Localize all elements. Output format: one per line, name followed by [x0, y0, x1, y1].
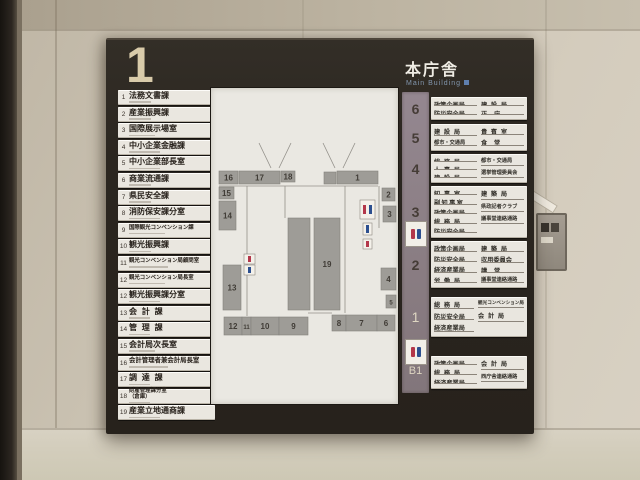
directory-row-label: 産業振興課 — [129, 109, 169, 120]
floor-panel-6: 政策企画局防災安全局建設局正庁 — [431, 97, 527, 120]
floor-strip-number-1: 1 — [402, 309, 429, 325]
directory-row: 9国際観光コンベンション課 — [118, 223, 215, 238]
male-pictogram-icon — [417, 229, 421, 239]
directory-row-label: 県民安全課 — [129, 192, 169, 203]
female-pictogram-icon — [411, 229, 415, 239]
directory-row: 4中小企業金融課 — [118, 140, 215, 155]
department-entry: 会計局 — [481, 359, 524, 370]
directory-row: 6商業流通課 — [118, 173, 215, 188]
directory-row-romaji-line — [129, 384, 150, 386]
department-entry: 貴賓室 — [481, 127, 524, 135]
directory-row: 5中小企業部長室 — [118, 156, 215, 171]
map-room-2: 2 — [382, 188, 395, 201]
directory-row-label: 管理課 — [129, 324, 167, 335]
directory-row-number: 4 — [118, 144, 129, 151]
department-entry: 議事堂連絡通路 — [481, 215, 524, 224]
directory-row: 12観光コンベンション局長室 — [118, 273, 215, 288]
department-entry: 政策企画局 — [434, 244, 477, 252]
restroom-icon — [405, 221, 427, 247]
wall-upper-tile-band — [0, 0, 640, 29]
directory-row-romaji-line — [129, 218, 160, 220]
directory-row: 16会計管理者兼会計局長室 — [118, 356, 215, 371]
department-entry: 建築局 — [481, 244, 524, 252]
accessibility-icon — [464, 80, 469, 85]
department-entry: 防災安全局 — [434, 227, 477, 233]
map-room-6: 6 — [377, 315, 395, 331]
floor-panel-5: 建設局都市・交通局貴賓室食堂 — [431, 124, 527, 151]
map-room — [288, 218, 310, 310]
restroom-icon — [405, 339, 427, 365]
floor-panel-5-left-column: 建設局都市・交通局 — [433, 126, 478, 149]
directory-row-number: 14 — [118, 326, 129, 333]
left-door-frame-shadow — [0, 0, 17, 480]
map-room-number: 13 — [228, 284, 237, 293]
department-entry: 都市・交通局 — [434, 139, 477, 146]
department-entry: 政策企画局 — [434, 208, 477, 214]
directory-row-number: 18 — [118, 393, 129, 400]
current-floor-numeral: 1 — [126, 36, 154, 94]
map-room-1: 1 — [337, 171, 378, 184]
floor-panel-1-right-column: 観光コンベンション局会計局 — [477, 299, 525, 335]
directory-row-number: 9 — [118, 227, 129, 234]
female-pictogram-icon — [411, 347, 415, 357]
switch-icon[interactable] — [541, 223, 549, 232]
directory-row-number: 3 — [118, 127, 129, 134]
directory-row-number: 19 — [118, 409, 129, 416]
department-entry: 建設局 — [434, 127, 477, 136]
floor-panel-2: 政策企画局防災安全局経済産業局労働局建築局収用委員会講堂議事堂連絡通路 — [431, 241, 527, 288]
directory-row-label: 法務文書課 — [129, 92, 169, 103]
directory-row-number: 6 — [118, 177, 129, 184]
restroom-figure-icon — [363, 205, 366, 214]
directory-row-label: 中小企業部長室 — [129, 158, 185, 169]
map-room-number: 10 — [261, 322, 270, 331]
directory-row-label: 産業立地通商課 — [129, 407, 185, 418]
department-entry: 会計局 — [478, 311, 524, 322]
directory-row: 11観光コンベンション局顧問室 — [118, 256, 215, 271]
department-entry: 政策企画局 — [434, 100, 477, 106]
male-pictogram-icon — [417, 347, 421, 357]
directory-row-label: 国際観光コンベンション課 — [129, 226, 194, 234]
directory-row-number: 11 — [118, 260, 129, 267]
floor-panel-B1-right-column: 会計局西庁舎連絡通路 — [480, 358, 525, 387]
map-room-11: 11 — [242, 317, 251, 335]
floor-plan-panel: 16171811514231913121110987645 — [210, 87, 399, 405]
directory-row-number: 5 — [118, 160, 129, 167]
directory-row-label: 会計局次長室 — [129, 341, 177, 352]
building-title: 本庁舎 — [405, 56, 459, 80]
directory-row-romaji-line — [129, 283, 165, 285]
directory-row-label: 財産管理課分室（倉庫） — [129, 389, 167, 403]
floor-panel-B1-left-column: 政策企画局総務局経済産業局 — [433, 358, 478, 387]
switch-icon[interactable] — [551, 223, 559, 232]
map-room-14: 14 — [219, 201, 236, 230]
map-room-8: 8 — [332, 315, 346, 331]
directory-row-romaji-line — [129, 402, 150, 404]
floor-panel-3-left-column: 知事室副知事室政策企画局総務局防災安全局 — [433, 188, 478, 236]
directory-row-label: 観光コンベンション局顧問室 — [129, 259, 199, 267]
directory-row: 3国際展示場室 — [118, 123, 215, 138]
floor-panel-1-left-column: 総務局防災安全局経済産業局 — [433, 299, 475, 335]
directory-row-romaji-line — [129, 301, 160, 303]
map-room-number: 17 — [255, 174, 264, 183]
restroom-figure-icon — [369, 205, 372, 214]
map-room-number: 15 — [222, 189, 231, 198]
floor-strip-number-5: 5 — [402, 130, 429, 146]
department-entry: 講堂 — [481, 266, 524, 274]
department-entry: 議事堂連絡通路 — [481, 276, 524, 283]
building-subtitle-text: Main Building — [406, 80, 461, 87]
floor-strip-number-B1: B1 — [402, 365, 429, 377]
directory-row-label: 国際展示場室 — [129, 125, 177, 136]
floor-panel-6-right-column: 建設局正庁 — [480, 99, 525, 118]
department-entry: 政策企画局 — [434, 359, 477, 365]
floor-panel-3-right-column: 建築局県政記者クラブ議事堂連絡通路 — [480, 188, 525, 236]
directory-row-romaji-line — [129, 233, 165, 235]
floor-panel-1: 総務局防災安全局経済産業局観光コンベンション局会計局 — [431, 297, 527, 337]
directory-row: 14管理課 — [118, 322, 215, 337]
map-room-number: 19 — [323, 260, 332, 269]
map-room-number: 16 — [224, 174, 233, 183]
department-entry: 労働局 — [434, 276, 477, 284]
directory-row: 2産業振興課 — [118, 107, 215, 122]
directory-row-romaji-line — [129, 184, 151, 186]
department-entry: 防災安全局 — [434, 255, 477, 263]
map-room-7: 7 — [346, 315, 377, 331]
directory-row: 12観光振興課分室 — [118, 289, 215, 304]
floor-panel-B1: 政策企画局総務局経済産業局会計局西庁舎連絡通路 — [431, 356, 527, 389]
directory-row-romaji-line — [129, 251, 151, 253]
directory-row-romaji-line — [129, 417, 160, 419]
map-room-number: 18 — [284, 173, 293, 182]
directory-row-number: 7 — [118, 194, 129, 201]
department-entry: 総務局 — [434, 217, 477, 223]
department-entry: 収用委員会 — [481, 255, 524, 263]
tile-seam — [0, 29, 640, 31]
directory-row-romaji-line — [129, 135, 155, 137]
directory-row-number: 13 — [118, 310, 129, 317]
floor-panel-2-right-column: 建築局収用委員会講堂議事堂連絡通路 — [480, 243, 525, 286]
directory-row-number: 15 — [118, 343, 129, 350]
directory-row-romaji-line — [129, 118, 151, 120]
map-room-number: 7 — [359, 319, 364, 328]
directory-row-number: 8 — [118, 210, 129, 217]
floor-strip-number-2: 2 — [402, 257, 429, 273]
elevator-figure-icon — [366, 241, 369, 247]
directory-row: 17調達課 — [118, 372, 215, 387]
department-entry: 観光コンベンション局 — [478, 300, 524, 308]
map-room-3: 3 — [383, 206, 396, 222]
map-room-number: 1 — [355, 174, 360, 183]
directory-row-label: 観光振興課分室 — [129, 291, 185, 302]
directory-row-romaji-line — [129, 266, 168, 268]
photo-of-building-directory: 1 本庁舎 Main Building 1法務文書課2産業振興課3国際展示場室4… — [0, 0, 640, 480]
floor-plan-map: 16171811514231913121110987645 — [211, 88, 398, 404]
map-room-17: 17 — [239, 171, 280, 184]
department-entry: 西庁舎連絡通路 — [481, 373, 524, 382]
map-room-16: 16 — [219, 171, 238, 184]
floor-panel-4-right-column: 都市・交通局選挙管理委員会 — [480, 156, 525, 181]
directory-row-number: 12 — [118, 293, 129, 300]
directory-row: 18財産管理課分室（倉庫） — [118, 389, 215, 404]
directory-row-label: 会計管理者兼会計局長室 — [129, 358, 199, 367]
directory-row-romaji-line — [129, 350, 155, 352]
directory-row-label: 調達課 — [129, 374, 167, 385]
map-room-18: 18 — [281, 171, 295, 182]
directory-row-number: 10 — [118, 243, 129, 250]
map-room-15: 15 — [219, 187, 234, 199]
map-room-5: 5 — [386, 295, 396, 308]
corridor-line — [343, 143, 355, 168]
directory-row-number: 2 — [118, 111, 129, 118]
left-frame-edge — [17, 0, 22, 480]
map-room-number: 9 — [291, 322, 296, 331]
directory-row-number: 17 — [118, 376, 129, 383]
department-entry: 防災安全局 — [434, 312, 474, 321]
directory-row: 10観光振興課 — [118, 239, 215, 254]
department-entry: 建築局 — [481, 189, 524, 200]
map-room-number: 3 — [387, 210, 392, 219]
map-restroom-icon — [360, 200, 375, 219]
directory-row-number: 16 — [118, 360, 129, 367]
department-entry: 副知事室 — [434, 198, 477, 204]
map-room-number: 2 — [386, 191, 391, 200]
map-room-4: 4 — [381, 268, 396, 290]
department-entry: 防災安全局 — [434, 109, 477, 115]
floor-strip-number-3: 3 — [402, 204, 429, 220]
floor-panel-6-left-column: 政策企画局防災安全局 — [433, 99, 478, 118]
directory-row: 7県民安全課 — [118, 190, 215, 205]
directory-row-label: 商業流通課 — [129, 175, 169, 186]
corridor-line — [259, 143, 271, 168]
directory-row: 8消防保安課分室 — [118, 206, 215, 221]
directory-row-number: 1 — [118, 94, 129, 101]
directory-row: 1法務文書課 — [118, 90, 215, 105]
floor-panel-4: 総務局人事局建設局都市・交通局選挙管理委員会 — [431, 154, 527, 183]
map-room-number: 6 — [384, 319, 389, 328]
directory-row-romaji-line — [129, 101, 151, 103]
map-room-number: 11 — [243, 325, 250, 331]
map-room-number: 12 — [229, 322, 238, 331]
department-entry: 総務局 — [434, 300, 474, 309]
floor-panel-4-left-column: 総務局人事局建設局 — [433, 156, 478, 181]
directory-row: 13会計課 — [118, 306, 215, 321]
directory-row-romaji-line — [129, 317, 150, 319]
department-entry: 正庁 — [481, 109, 524, 115]
directory-row: 19産業立地通商課 — [118, 405, 215, 420]
directory-row-romaji-line — [129, 334, 150, 336]
directory-row-number: 12 — [118, 277, 129, 284]
floor-strip-number-4: 4 — [402, 161, 429, 177]
directory-row-label: 会計課 — [129, 308, 167, 319]
directory-row-romaji-line — [129, 151, 160, 153]
department-entry: 知事室 — [434, 189, 477, 195]
floor-number-strip: 654321B1 — [402, 92, 429, 393]
elevator-figure-icon — [248, 256, 251, 262]
floor-panel-2-left-column: 政策企画局防災安全局経済産業局労働局 — [433, 243, 478, 286]
floor-panel-5-right-column: 貴賓室食堂 — [480, 126, 525, 149]
directory-row-label: 観光振興課 — [129, 241, 169, 252]
elevator-figure-icon — [248, 267, 251, 273]
wall-switch-box[interactable] — [536, 213, 567, 271]
directory-row-romaji-line — [129, 201, 151, 203]
department-entry: 総務局 — [434, 157, 477, 162]
map-room-12: 12 — [224, 317, 242, 335]
department-entry: 食堂 — [481, 138, 524, 146]
directory-row-label: 中小企業金融課 — [129, 142, 185, 153]
department-entry: 経済産業局 — [434, 378, 477, 384]
elevator-figure-icon — [366, 225, 369, 233]
wall-base-and-floor — [0, 428, 640, 480]
map-room-10: 10 — [251, 317, 279, 335]
map-room-9: 9 — [279, 317, 308, 335]
map-room-19: 19 — [314, 218, 340, 310]
building-subtitle: Main Building — [406, 80, 469, 87]
department-entry: 経済産業局 — [434, 265, 477, 273]
department-entry: 都市・交通局 — [481, 157, 524, 166]
directory-row: 15会計局次長室 — [118, 339, 215, 354]
directory-row-romaji-line — [129, 168, 160, 170]
floor-panel-3: 知事室副知事室政策企画局総務局防災安全局建築局県政記者クラブ議事堂連絡通路 — [431, 186, 527, 238]
map-room — [324, 172, 336, 184]
corridor-line — [279, 143, 291, 168]
department-entry: 建設局 — [434, 173, 477, 178]
directory-row-label: 観光コンベンション局長室 — [129, 276, 194, 284]
department-entry: 総務局 — [434, 368, 477, 374]
directory-row-romaji-line — [129, 366, 168, 368]
department-entry: 県政記者クラブ — [481, 203, 524, 212]
map-room-number: 14 — [223, 212, 232, 221]
department-entry: 選挙管理委員会 — [481, 169, 524, 178]
switch-label — [541, 237, 553, 243]
tile-seam — [55, 0, 57, 480]
department-entry: 建設局 — [481, 100, 524, 106]
directory-sign-board: 1 本庁舎 Main Building 1法務文書課2産業振興課3国際展示場室4… — [106, 38, 534, 434]
department-entry: 経済産業局 — [434, 323, 474, 332]
map-room-number: 8 — [337, 319, 342, 328]
floor-strip-number-6: 6 — [402, 101, 429, 117]
corridor-line — [323, 143, 335, 168]
directory-row-label: 消防保安課分室 — [129, 208, 185, 219]
department-entry: 人事局 — [434, 165, 477, 170]
map-room-13: 13 — [223, 265, 241, 310]
map-room-number: 4 — [386, 275, 391, 284]
